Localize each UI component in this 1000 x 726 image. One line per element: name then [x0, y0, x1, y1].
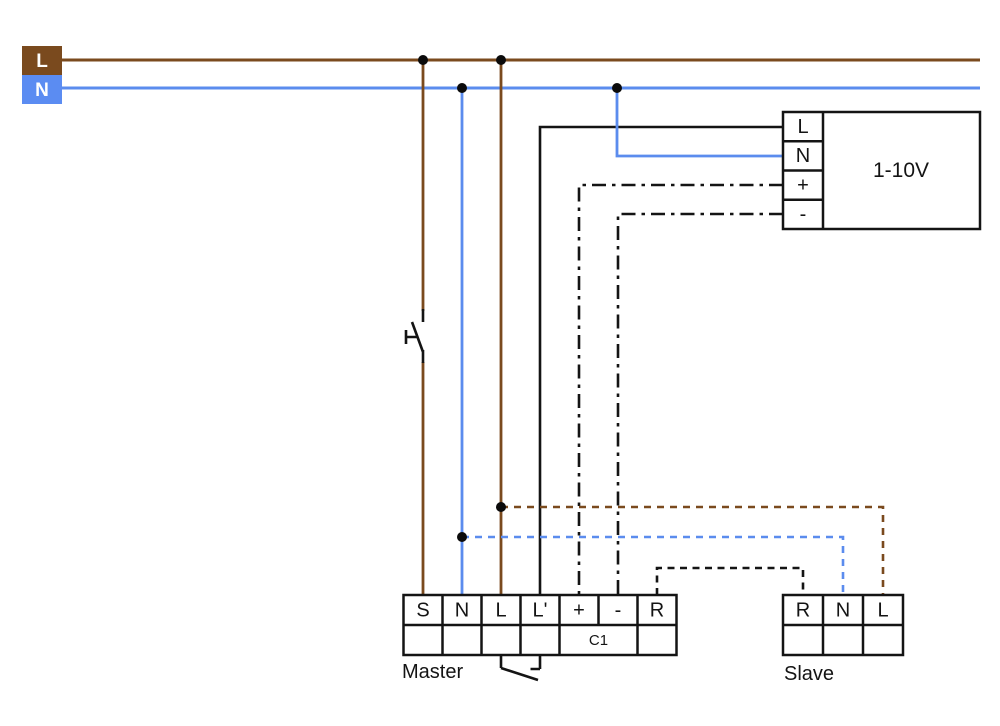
junction-dot-l-slave-branch [496, 502, 506, 512]
junction-dot-n-slave-branch [457, 532, 467, 542]
master-terminal-lprime: L' [533, 600, 548, 622]
slave-n-link-wire [462, 537, 843, 595]
junction-dot-n-bus-n [457, 83, 467, 93]
junction-dot-n-bus-device [612, 83, 622, 93]
device-terminal-l: L [797, 116, 808, 138]
slave-terminal-block: R N L [783, 595, 903, 655]
master-terminal-r: R [650, 600, 664, 622]
wiring-diagram: L N L N + - 1-10V S N L L' + - R C1 [0, 0, 1000, 726]
lprime-to-device-wire [540, 127, 783, 595]
slave-label: Slave [784, 663, 834, 685]
slave-terminal-l: L [877, 600, 888, 622]
master-label: Master [402, 661, 463, 683]
supply-n-label: N [35, 80, 49, 101]
device-terminal-minus: - [800, 204, 807, 226]
slave-terminal-r: R [796, 600, 810, 622]
master-terminal-n: N [455, 600, 469, 622]
master-terminal-l: L [495, 600, 506, 622]
device-title: 1-10V [873, 159, 929, 182]
junction-dot-l-bus-s [418, 55, 428, 65]
slave-r-link-wire [657, 568, 803, 595]
slave-l-link-wire [501, 507, 883, 595]
plus-control-wire [579, 185, 783, 595]
master-terminal-s: S [416, 600, 429, 622]
wall-switch-icon [501, 655, 540, 680]
junction-dot-l-bus-l [496, 55, 506, 65]
device-terminal-plus: + [797, 175, 809, 197]
master-terminal-plus: + [573, 600, 585, 622]
master-terminal-minus: - [615, 600, 622, 622]
slave-terminal-n: N [836, 600, 850, 622]
supply-n-box: N [22, 75, 62, 104]
supply-l-box: L [22, 46, 62, 75]
master-terminal-block: S N L L' + - R C1 [404, 595, 677, 655]
channel-label: C1 [589, 632, 608, 649]
pushbutton-switch-icon [406, 309, 423, 363]
wiring-diagram-svg: L N L N + - 1-10V S N L L' + - R C1 [0, 0, 1000, 726]
device-box: L N + - 1-10V [783, 112, 980, 229]
device-terminal-n: N [796, 145, 810, 167]
supply-l-label: L [36, 51, 48, 72]
device-n-wire [617, 88, 783, 156]
